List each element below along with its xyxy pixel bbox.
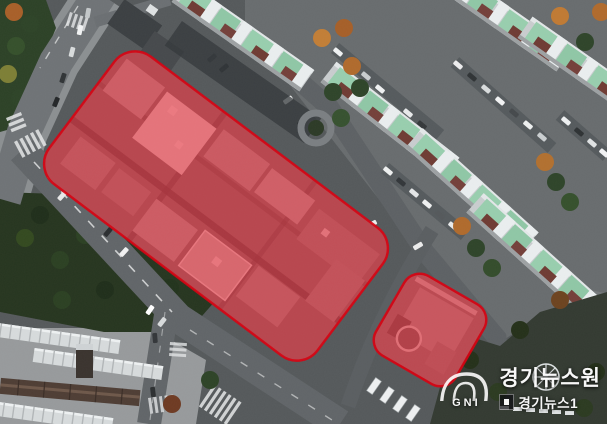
news-aerial-photo: GNI 경기뉴스원 경기뉴스1 [0,0,607,424]
gni-brand-text: GNI [452,398,481,409]
satellite-photo [0,0,607,424]
watermark: GNI 경기뉴스원 경기뉴스1 [439,368,601,412]
watermark-subtitle: 경기뉴스1 [518,392,578,412]
news1-badge-icon [499,394,514,410]
watermark-title: 경기뉴스원 [499,368,601,390]
gni-logo: GNI [439,370,493,409]
photo-grain [0,0,607,424]
